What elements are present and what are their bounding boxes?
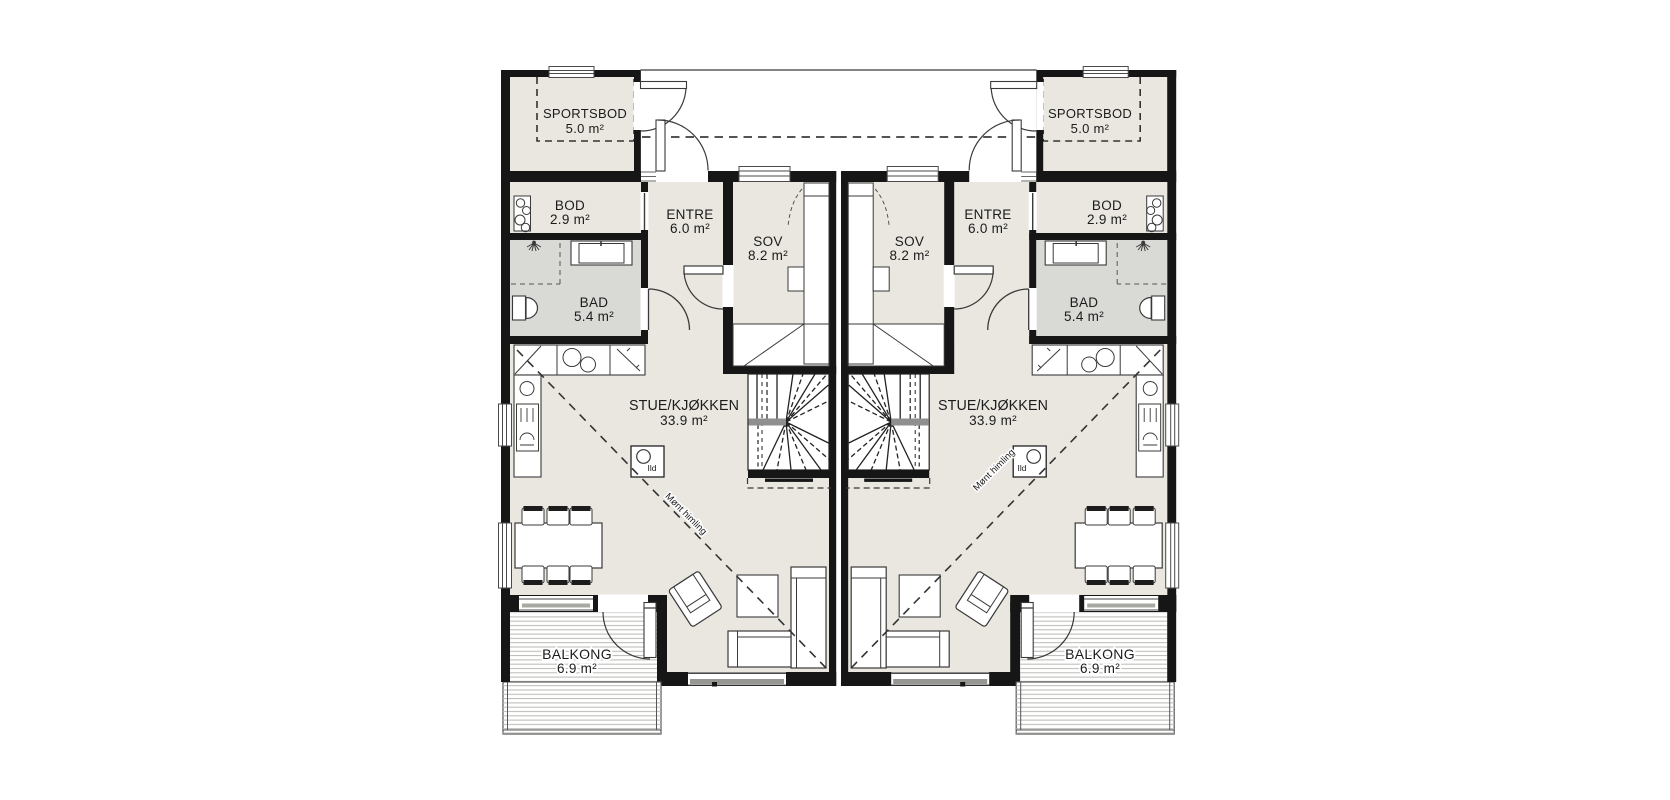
svg-text:SOV: SOV [895,234,924,249]
svg-text:33.9 m²: 33.9 m² [969,413,1017,428]
svg-text:2.9 m²: 2.9 m² [550,212,590,227]
svg-text:Ild: Ild [1018,463,1027,473]
svg-text:BALKONG: BALKONG [1065,646,1135,662]
svg-text:ENTRE: ENTRE [666,207,713,222]
svg-text:BOD: BOD [1092,198,1122,213]
svg-text:6.0 m²: 6.0 m² [968,221,1008,236]
svg-text:5.4 m²: 5.4 m² [574,309,614,324]
svg-text:Ild: Ild [648,463,657,473]
svg-text:BALKONG: BALKONG [542,646,612,662]
svg-text:6.9 m²: 6.9 m² [557,661,597,676]
svg-text:BOD: BOD [555,198,585,213]
svg-text:BAD: BAD [1070,295,1099,310]
svg-text:5.0 m²: 5.0 m² [1071,121,1110,136]
svg-text:8.2 m²: 8.2 m² [889,248,929,263]
svg-text:STUE/KJØKKEN: STUE/KJØKKEN [938,398,1048,414]
svg-text:5.0 m²: 5.0 m² [566,121,605,136]
svg-text:SPORTSBOD: SPORTSBOD [543,106,627,121]
svg-text:6.9 m²: 6.9 m² [1080,661,1120,676]
svg-text:33.9 m²: 33.9 m² [660,413,708,428]
svg-text:STUE/KJØKKEN: STUE/KJØKKEN [629,398,739,414]
svg-text:6.0 m²: 6.0 m² [670,221,710,236]
svg-text:ENTRE: ENTRE [964,207,1011,222]
svg-text:SOV: SOV [753,234,782,249]
svg-text:2.9 m²: 2.9 m² [1087,212,1127,227]
svg-text:8.2 m²: 8.2 m² [748,248,788,263]
svg-text:SPORTSBOD: SPORTSBOD [1048,106,1132,121]
svg-text:BAD: BAD [580,295,609,310]
svg-text:5.4 m²: 5.4 m² [1064,309,1104,324]
